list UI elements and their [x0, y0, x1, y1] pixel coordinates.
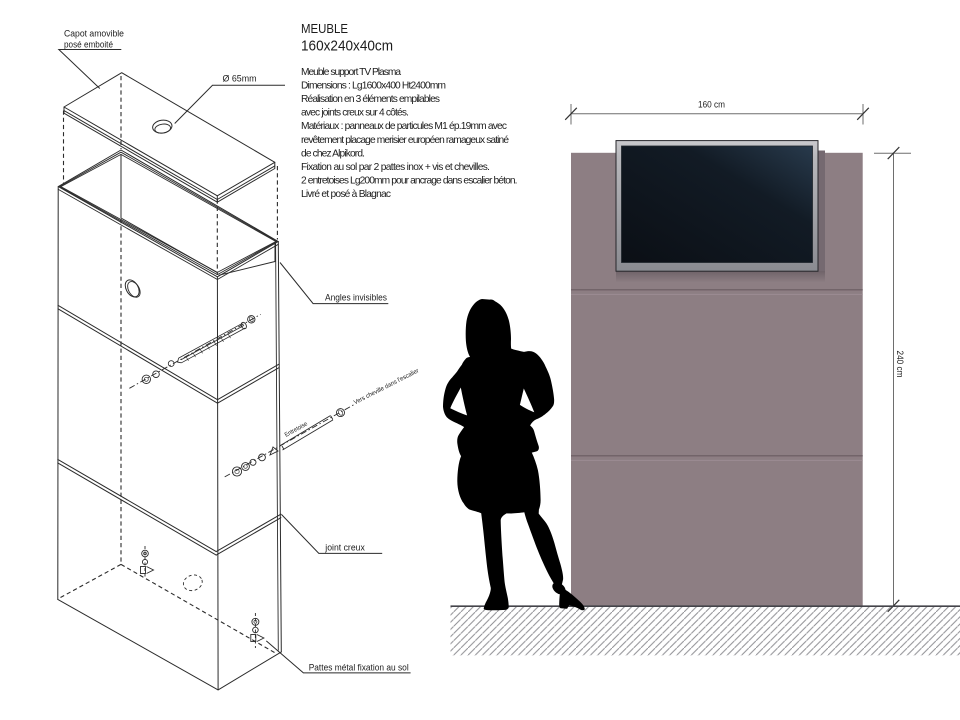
svg-text:Réalisation en 3 éléments empi: Réalisation en 3 éléments empilables	[301, 94, 440, 105]
svg-text:Pattes métal fixation au sol: Pattes métal fixation au sol	[309, 663, 409, 674]
svg-text:avec joints creux sur 4 côtés.: avec joints creux sur 4 côtés.	[301, 108, 409, 119]
svg-text:160 cm: 160 cm	[698, 100, 725, 110]
svg-text:2 entretoises Lg200mm pour anc: 2 entretoises Lg200mm pour ancrage dans …	[301, 176, 518, 187]
svg-text:MEUBLE: MEUBLE	[301, 21, 348, 36]
svg-text:240 cm: 240 cm	[895, 351, 905, 378]
svg-text:Capot amovible: Capot amovible	[64, 29, 124, 40]
svg-text:Vers cheville dans l'escalier: Vers cheville dans l'escalier	[353, 367, 420, 406]
svg-text:de chez Alpikord.: de chez Alpikord.	[301, 148, 365, 159]
svg-text:160x240x40cm: 160x240x40cm	[301, 38, 393, 54]
svg-text:Matériaux : panneaux de partic: Matériaux : panneaux de particules M1 ép…	[301, 121, 507, 132]
svg-text:posé emboité: posé emboité	[64, 40, 113, 51]
svg-text:Meuble support TV Plasma: Meuble support TV Plasma	[301, 67, 401, 78]
svg-text:Fixation au sol par 2 pattes i: Fixation au sol par 2 pattes inox + vis …	[301, 162, 490, 173]
svg-text:Angles invisibles: Angles invisibles	[325, 293, 387, 304]
svg-text:Livré et posé à Blagnac: Livré et posé à Blagnac	[301, 189, 391, 200]
svg-text:Dimensions : Lg1600x400 Ht2400: Dimensions : Lg1600x400 Ht2400mm	[301, 80, 446, 91]
svg-text:revêtement placage merisier eu: revêtement placage merisier européen ram…	[301, 135, 509, 146]
svg-text:Ø 65mm: Ø 65mm	[223, 74, 257, 85]
svg-text:joint creux: joint creux	[324, 542, 365, 553]
